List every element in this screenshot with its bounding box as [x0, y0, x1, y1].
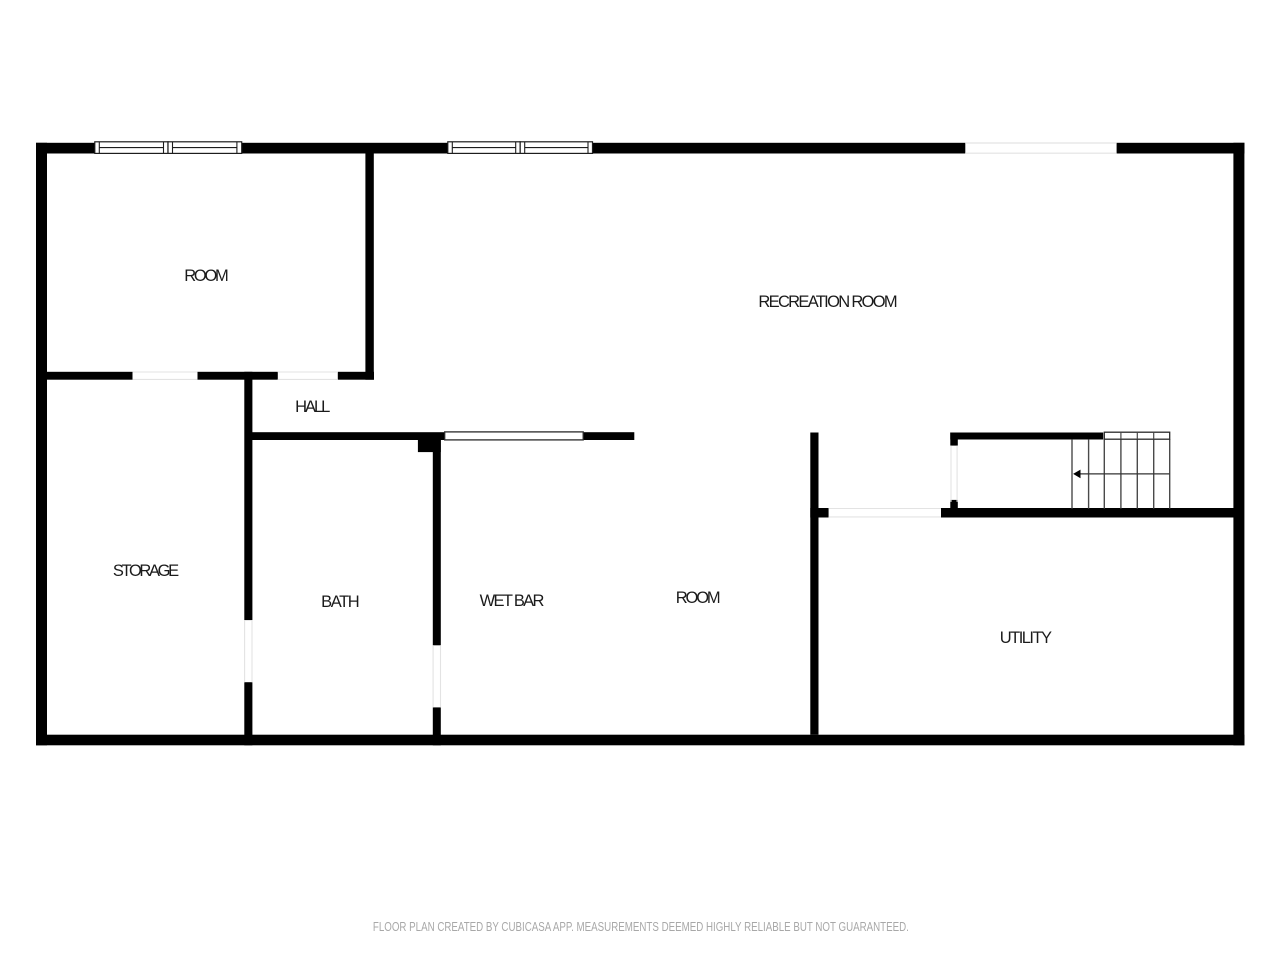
svg-text:ROOM: ROOM — [184, 267, 229, 285]
svg-text:ROOM: ROOM — [676, 589, 721, 607]
svg-text:BATH: BATH — [321, 593, 360, 611]
svg-text:WET BAR: WET BAR — [480, 592, 545, 610]
svg-text:UTILITY: UTILITY — [1000, 629, 1052, 647]
svg-text:FLOOR PLAN CREATED BY CUBICASA: FLOOR PLAN CREATED BY CUBICASA APP. MEAS… — [373, 919, 909, 934]
svg-text:RECREATION ROOM: RECREATION ROOM — [758, 293, 897, 311]
svg-text:HALL: HALL — [295, 398, 330, 416]
svg-text:STORAGE: STORAGE — [113, 562, 179, 580]
